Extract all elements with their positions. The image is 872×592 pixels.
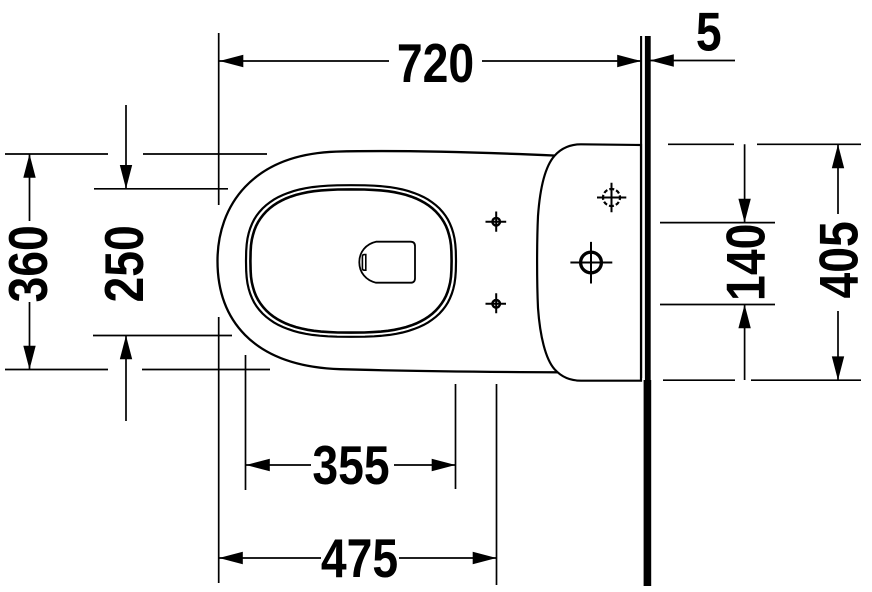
svg-text:140: 140: [715, 224, 776, 301]
svg-text:475: 475: [321, 527, 398, 588]
svg-text:720: 720: [397, 32, 474, 93]
svg-text:360: 360: [0, 225, 59, 302]
svg-text:355: 355: [312, 434, 389, 495]
svg-text:5: 5: [696, 1, 722, 62]
svg-text:250: 250: [93, 225, 154, 302]
svg-text:405: 405: [808, 221, 869, 298]
